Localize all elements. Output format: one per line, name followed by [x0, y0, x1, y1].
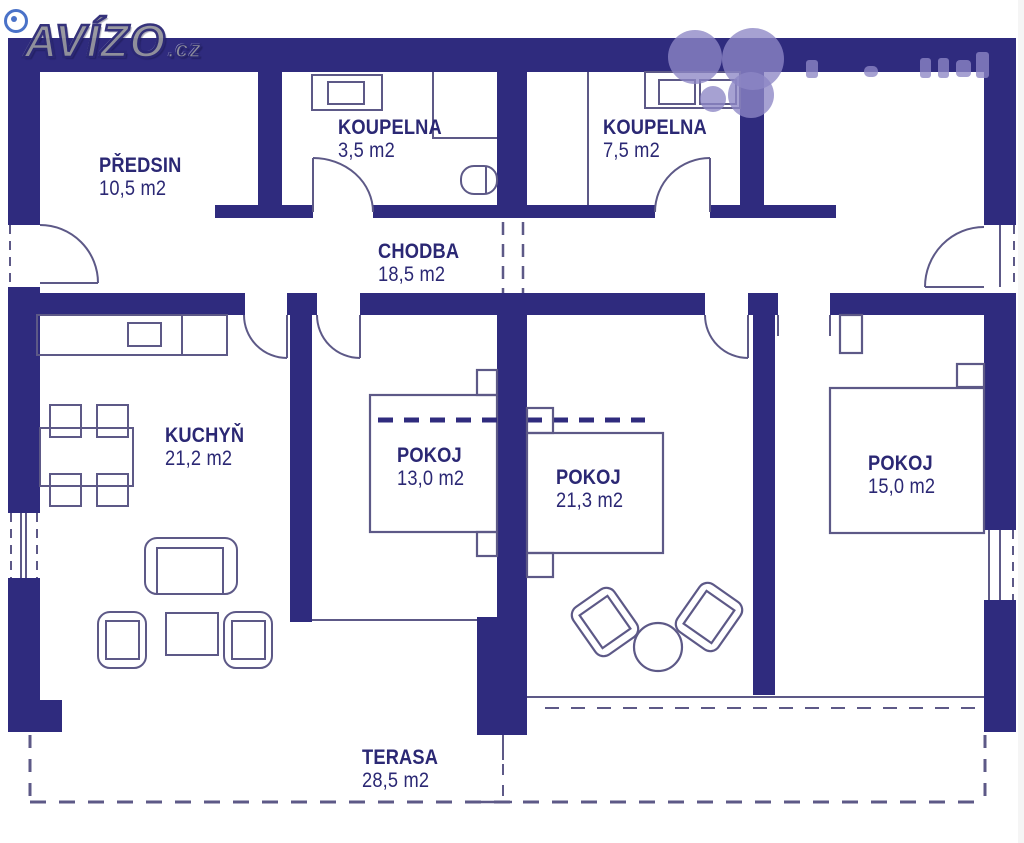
sofa-seat — [157, 548, 223, 594]
room-name: KOUPELNA — [338, 116, 442, 139]
room-label-kuchyn: KUCHYŇ 21,2 m2 — [165, 424, 244, 470]
wall-hall-bottom-c — [830, 293, 1016, 315]
room-area: 28,5 m2 — [362, 769, 438, 792]
logo-text: AVÍZO — [24, 15, 166, 67]
page-corner-icon — [4, 9, 28, 33]
floor-plan-page: PŘEDSIN 10,5 m2 KOUPELNA 3,5 m2 KOUPELNA… — [0, 0, 1024, 843]
wall-right-upper — [984, 72, 1016, 225]
wardrobe-pokoj15 — [840, 315, 862, 353]
lounge-chair-left-frame — [568, 584, 642, 660]
kitchen-counter — [37, 315, 227, 355]
wall-center-foot — [477, 617, 527, 735]
wall-kitchen-divider — [290, 315, 312, 622]
wall-predsin-bath — [258, 72, 282, 218]
lounge-chair-left — [568, 584, 642, 660]
scan-edge — [1018, 0, 1024, 843]
wall-hall-bottom-a — [8, 293, 245, 315]
coffee-table — [166, 613, 218, 655]
room-label-koupelna-small: KOUPELNA 3,5 m2 — [338, 116, 442, 162]
bath1-door-arc — [313, 158, 373, 212]
lounge-chair-right-frame — [672, 579, 746, 655]
room-label-terasa: TERASA 28,5 m2 — [362, 746, 438, 792]
entrance-door-arc — [40, 225, 98, 283]
walls — [8, 38, 1016, 735]
wall-right-mid — [984, 293, 1016, 530]
room-name: KOUPELNA — [603, 116, 707, 139]
watermark-fragment — [938, 58, 949, 78]
watermark-lobe-small — [700, 86, 726, 112]
wall-right-lower — [984, 600, 1016, 732]
room-name: POKOJ — [397, 444, 464, 467]
pokoj13-door-arc — [317, 315, 360, 358]
exit-door-arc — [925, 227, 984, 287]
page-corner-icon-dot — [11, 16, 17, 22]
room-area: 3,5 m2 — [338, 139, 442, 162]
wall-center-mid — [497, 315, 527, 617]
armchair-right-seat — [232, 621, 265, 659]
bath2-door-arc — [655, 158, 710, 212]
watermark-fragment — [976, 52, 989, 78]
chair-3 — [50, 474, 81, 506]
watermark-lobe-lower — [728, 72, 774, 118]
room-label-chodba: CHODBA 18,5 m2 — [378, 240, 459, 286]
room-name: TERASA — [362, 746, 438, 769]
room-area: 13,0 m2 — [397, 467, 464, 490]
armchair-left-seat — [106, 621, 139, 659]
room-name: KUCHYŇ — [165, 424, 244, 447]
kitchen-furniture — [37, 315, 272, 668]
room-label-predsin: PŘEDSIN 10,5 m2 — [99, 154, 181, 200]
room-name: PŘEDSIN — [99, 154, 181, 177]
room-label-pokoj-13: POKOJ 13,0 m2 — [397, 444, 464, 490]
wall-center-top — [497, 72, 527, 218]
room-area: 18,5 m2 — [378, 263, 459, 286]
avizo-logo: AVÍZO.cz — [24, 14, 202, 68]
chair-2 — [97, 405, 128, 437]
pokoj21-door-arc — [705, 315, 748, 358]
kitchen-stove — [128, 323, 161, 346]
watermark-fragment — [806, 60, 818, 78]
room-area: 21,2 m2 — [165, 447, 244, 470]
room-name: POKOJ — [556, 466, 623, 489]
watermark-fragment — [920, 58, 931, 78]
wall-left-mid — [8, 287, 40, 513]
wall-hall-bottom-b — [360, 293, 705, 315]
kitchen-door-arc — [244, 315, 287, 358]
nightstand-pokoj13-bottom — [477, 532, 497, 556]
room-area: 15,0 m2 — [868, 475, 935, 498]
wall-hall-top-b — [373, 205, 655, 218]
wall-hall-top-c — [710, 205, 836, 218]
wall-hall-bottom-block2 — [748, 293, 778, 315]
nightstand-pokoj21-bottom — [527, 553, 553, 577]
chair-1 — [50, 405, 81, 437]
nightstand-pokoj15 — [957, 364, 984, 387]
room-name: CHODBA — [378, 240, 459, 263]
pokoj21-furniture — [527, 408, 746, 671]
room-area: 10,5 m2 — [99, 177, 181, 200]
wall-pokoj-divider — [753, 315, 775, 695]
logo-tld: .cz — [168, 36, 202, 62]
bath1-shower — [433, 72, 497, 138]
round-table — [634, 623, 682, 671]
terrace-boundary — [30, 735, 985, 802]
lounge-chair-right — [672, 579, 746, 655]
floor-plan-drawing — [0, 0, 1024, 843]
room-label-pokoj-21: POKOJ 21,3 m2 — [556, 466, 623, 512]
wall-hall-top-a — [215, 205, 313, 218]
room-label-pokoj-15: POKOJ 15,0 m2 — [868, 452, 935, 498]
room-area: 21,3 m2 — [556, 489, 623, 512]
bath1-toilet — [461, 166, 497, 194]
room-area: 7,5 m2 — [603, 139, 707, 162]
room-label-koupelna-large: KOUPELNA 7,5 m2 — [603, 116, 707, 162]
wall-left-upper — [8, 72, 40, 225]
wall-left-foot — [8, 700, 62, 732]
pokoj15-furniture — [830, 315, 984, 533]
nightstand-pokoj13-top — [477, 370, 497, 395]
bath1-sink — [328, 82, 364, 104]
room-name: POKOJ — [868, 452, 935, 475]
watermark-fragment — [864, 66, 878, 77]
wall-hall-bottom-block1 — [287, 293, 317, 315]
watermark-wing-left — [668, 30, 722, 84]
watermark-fragment — [956, 60, 971, 77]
chair-4 — [97, 474, 128, 506]
